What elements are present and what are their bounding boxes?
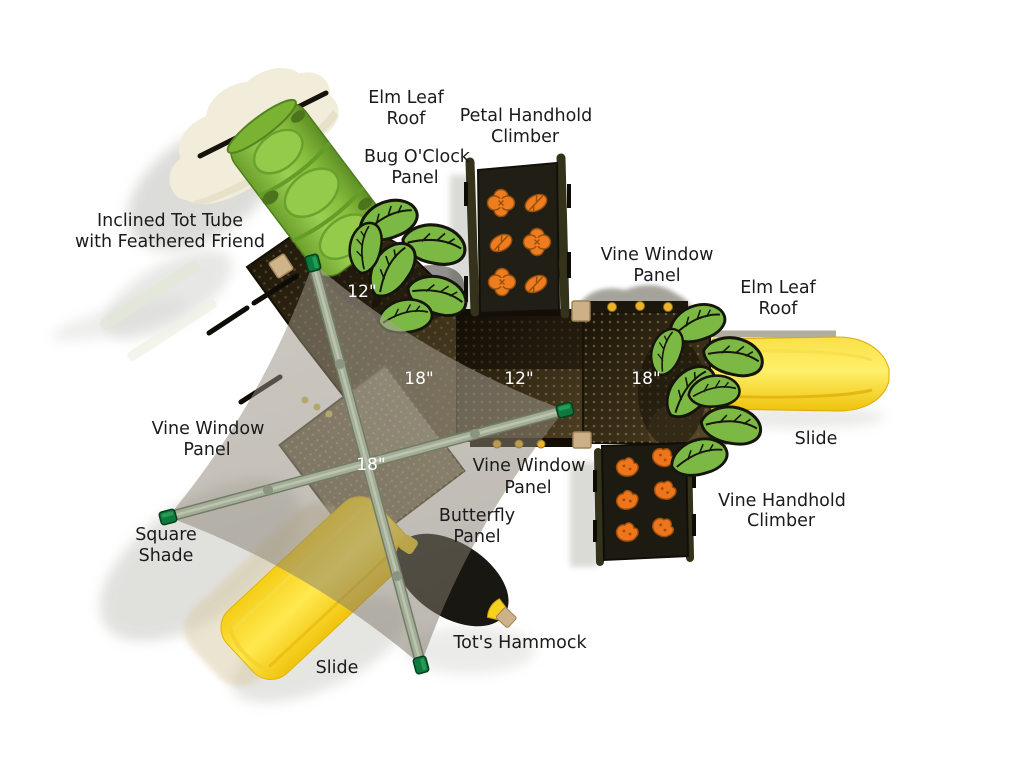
dim-tube-deck: 12" bbox=[347, 282, 376, 302]
label-tots-hammock: Tot's Hammock bbox=[452, 633, 587, 653]
label-elm-leaf-roof-right-2: Roof bbox=[759, 299, 799, 319]
pole-collar bbox=[470, 429, 480, 439]
label-square-shade: Square bbox=[135, 525, 197, 545]
window-dot bbox=[636, 302, 645, 311]
label-vine-window-panel-left-2: Panel bbox=[183, 440, 230, 460]
label-slide-right: Slide bbox=[795, 429, 838, 449]
label-butterfly-panel: Butterfly bbox=[439, 506, 515, 526]
dim-middle-deck: 12" bbox=[504, 369, 533, 389]
label-inclined-tot-tube: Inclined Tot Tube bbox=[97, 211, 243, 231]
pole-collar bbox=[335, 359, 345, 369]
pole-collar bbox=[263, 485, 273, 495]
climber-rail bbox=[598, 452, 600, 562]
label-vine-window-panel-right-2: Panel bbox=[633, 266, 680, 286]
label-square-shade-2: Shade bbox=[139, 546, 194, 566]
label-slide-bottom: Slide bbox=[316, 658, 359, 678]
label-bug-oclock-panel-2: Panel bbox=[391, 168, 438, 188]
pole-collar bbox=[392, 571, 402, 581]
label-petal-handhold-climber: Petal Handhold bbox=[460, 106, 593, 126]
label-elm-leaf-roof-right: Elm Leaf bbox=[740, 278, 816, 298]
label-petal-handhold-climber-2: Climber bbox=[491, 127, 560, 147]
label-vine-handhold-climber-2: Climber bbox=[747, 511, 816, 531]
label-vine-window-panel-center-2: Panel bbox=[504, 478, 551, 498]
window-dot bbox=[608, 303, 617, 312]
climber-rail bbox=[470, 162, 475, 312]
dim-upper-deck: 18" bbox=[404, 369, 433, 389]
playground-top-view-diagram: Elm Leaf Roof Petal Handhold Climber Bug… bbox=[0, 0, 1024, 768]
dim-lower-deck: 18" bbox=[356, 455, 385, 475]
label-vine-window-panel-right: Vine Window bbox=[601, 245, 714, 265]
label-elm-leaf-roof-top-2: Roof bbox=[387, 109, 427, 129]
climber-rail bbox=[561, 158, 565, 314]
label-vine-window-panel-center: Vine Window bbox=[473, 456, 586, 476]
window-dot bbox=[664, 303, 673, 312]
deck-shadow-overlay bbox=[457, 314, 583, 369]
label-vine-window-panel-left: Vine Window bbox=[152, 419, 265, 439]
label-bug-oclock-panel: Bug O'Clock bbox=[364, 147, 471, 167]
label-inclined-tot-tube-2: with Feathered Friend bbox=[75, 232, 265, 252]
label-vine-handhold-climber: Vine Handhold bbox=[718, 491, 846, 511]
diagram-stage: Elm Leaf Roof Petal Handhold Climber Bug… bbox=[0, 0, 1024, 768]
label-butterfly-panel-2: Panel bbox=[453, 527, 500, 547]
dim-right-deck: 18" bbox=[631, 369, 660, 389]
label-elm-leaf-roof-top: Elm Leaf bbox=[368, 88, 444, 108]
petal-handhold-climber bbox=[464, 158, 571, 314]
